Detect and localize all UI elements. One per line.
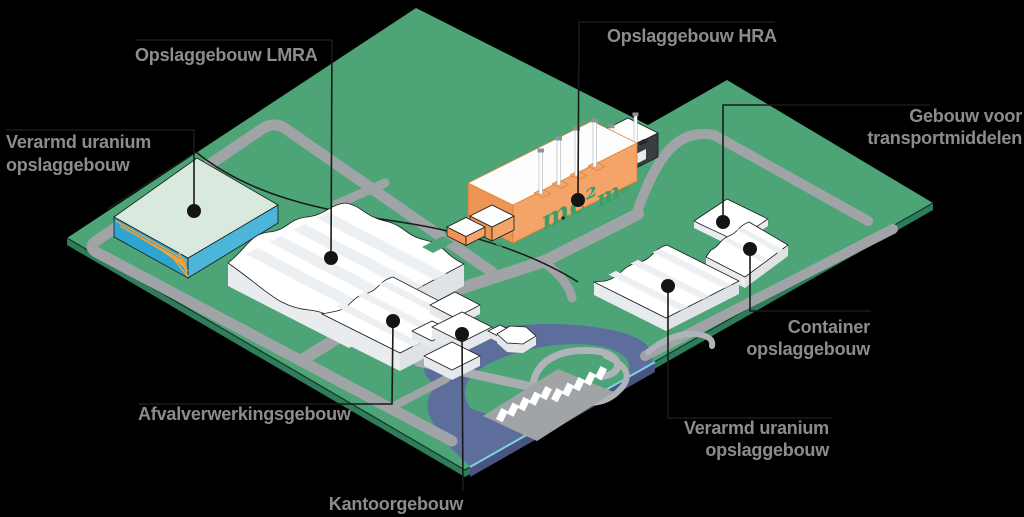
callout-dot-lmra — [324, 251, 338, 265]
callout-dot-kantoor — [455, 327, 469, 341]
label-container-line1: Container — [788, 317, 870, 337]
label-hra: Opslaggebouw HRA — [607, 26, 777, 46]
callout-dot-hra — [571, 193, 585, 207]
label-afval: Afvalverwerkingsgebouw — [138, 404, 352, 424]
label-kantoor: Kantoorgebouw — [329, 494, 465, 514]
hra-door-dot — [561, 216, 564, 219]
callout-dot-afval — [386, 314, 400, 328]
site-map: E ≡ mc² m ≡ — [0, 0, 1024, 517]
label-container-line2: opslaggebouw — [746, 339, 871, 359]
label-vu-right-line1: Verarmd uranium — [684, 418, 829, 438]
leader-line-kantoor — [462, 334, 463, 491]
label-vu-left-line1: Verarmd uranium — [6, 132, 151, 152]
label-vu-left-line2: opslaggebouw — [6, 155, 131, 175]
callout-dot-vu-left — [187, 204, 201, 218]
label-vu-right-line2: opslaggebouw — [705, 440, 830, 460]
label-transport-line1: Gebouw voor — [909, 106, 1022, 126]
label-lmra: Opslaggebouw LMRA — [135, 45, 318, 65]
label-transport-line2: transportmiddelen — [867, 128, 1022, 148]
callout-dot-vu-right — [661, 279, 675, 293]
callout-dot-container — [743, 242, 757, 256]
callout-dot-transport — [716, 215, 730, 229]
